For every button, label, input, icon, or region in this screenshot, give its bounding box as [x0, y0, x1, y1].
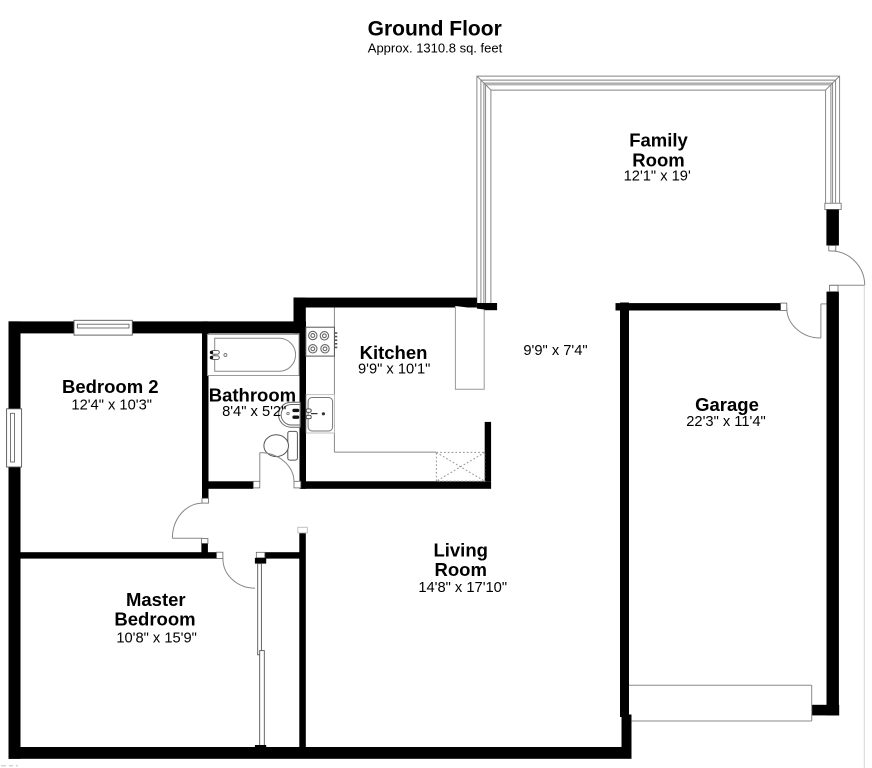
- svg-text:Kitchen: Kitchen: [360, 342, 428, 363]
- svg-text:14'8" x 17'10": 14'8" x 17'10": [418, 580, 507, 596]
- svg-text:Bedroom: Bedroom: [114, 609, 195, 630]
- svg-text:9'9" x 7'4": 9'9" x 7'4": [523, 343, 587, 359]
- svg-text:22'3" x 11'4": 22'3" x 11'4": [686, 414, 765, 430]
- svg-text:Bedroom 2: Bedroom 2: [62, 376, 159, 397]
- svg-text:Master: Master: [126, 589, 186, 610]
- svg-text:Living: Living: [433, 540, 487, 561]
- svg-text:9'9" x 10'1": 9'9" x 10'1": [358, 362, 430, 378]
- svg-text:12'4" x 10'3": 12'4" x 10'3": [71, 398, 152, 414]
- svg-text:Family: Family: [629, 130, 688, 151]
- svg-text:8'4" x 5'2": 8'4" x 5'2": [222, 404, 286, 420]
- svg-text:Ground Floor: Ground Floor: [368, 17, 502, 40]
- svg-text:Room: Room: [632, 150, 684, 171]
- svg-text:10'8" x 15'9": 10'8" x 15'9": [116, 630, 197, 646]
- svg-text:Garage: Garage: [695, 394, 759, 415]
- svg-text:Bathroom: Bathroom: [209, 385, 296, 406]
- svg-text:12'1" x 19': 12'1" x 19': [624, 169, 691, 185]
- svg-text:Approx. 1310.8 sq. feet: Approx. 1310.8 sq. feet: [368, 41, 503, 56]
- svg-text:Room: Room: [434, 559, 486, 580]
